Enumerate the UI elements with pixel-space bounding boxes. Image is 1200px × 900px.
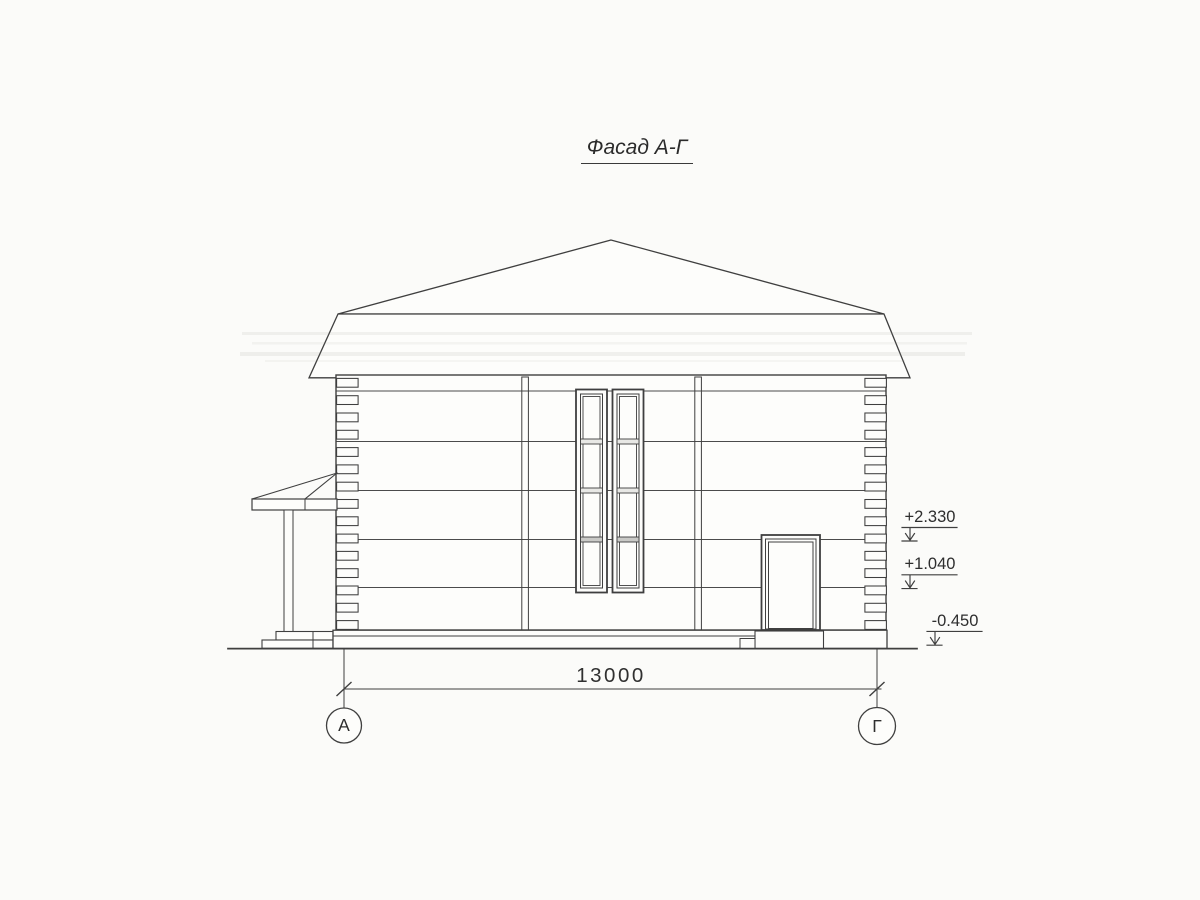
axis-label-a: А <box>326 717 362 735</box>
elevation-mark-value-1: +2.330 <box>901 509 959 526</box>
muntin <box>617 537 639 542</box>
scanned-facade-sheet: Фасад А-Г 13000 +2.330 +1.040 -0.450 А Г <box>0 0 1200 900</box>
elevation-mark-value-3: -0.450 <box>926 613 984 630</box>
muntin <box>581 537 603 542</box>
facade-drawing <box>0 0 1200 900</box>
porch-steps <box>262 632 333 649</box>
door-step <box>740 639 755 649</box>
elevation-mark-value-2: +1.040 <box>901 556 959 573</box>
elevation-mark-arrow-2 <box>902 575 957 589</box>
corner-notches-right <box>865 378 887 629</box>
porch-post <box>284 510 293 632</box>
muntin <box>617 488 639 493</box>
window-right <box>613 390 644 593</box>
window-left <box>576 390 607 593</box>
muntin <box>581 439 603 444</box>
drawing-title: Фасад А-Г <box>581 137 693 164</box>
axis-label-g: Г <box>859 718 895 736</box>
door <box>762 535 821 630</box>
muntin <box>581 488 603 493</box>
porch-canopy <box>252 473 337 510</box>
corner-notches-left <box>337 378 359 629</box>
muntin <box>617 439 639 444</box>
roof <box>309 240 910 378</box>
elevation-mark-arrow-3 <box>927 631 982 645</box>
elevation-mark-arrow-1 <box>902 528 957 542</box>
dimension-value: 13000 <box>575 666 647 687</box>
